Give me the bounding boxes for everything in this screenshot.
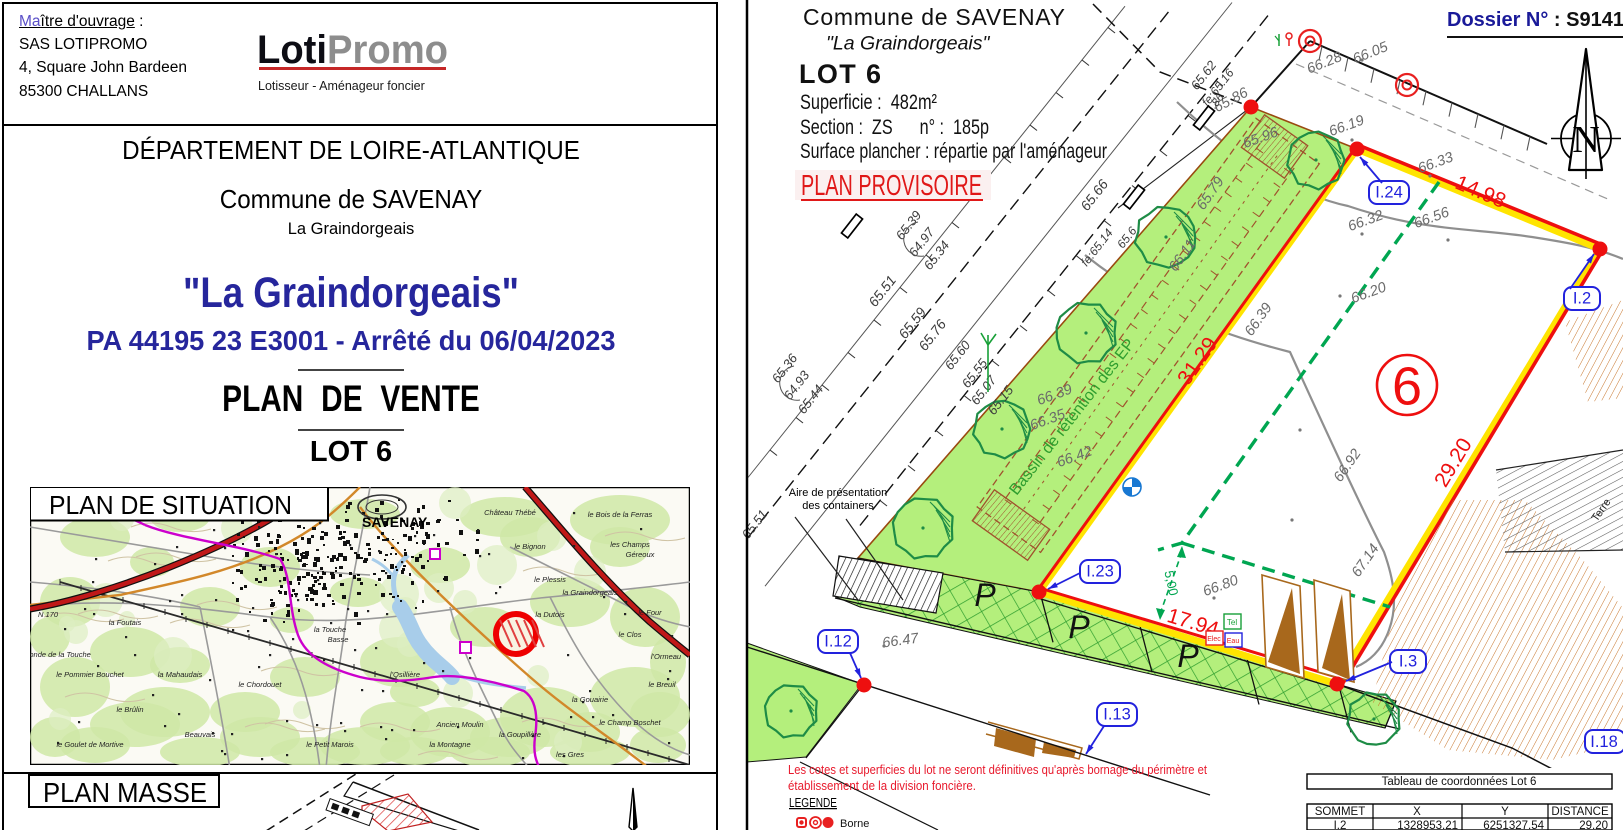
svg-text:la Gouairie: la Gouairie [572, 695, 608, 704]
svg-text:la Touche: la Touche [314, 625, 346, 634]
svg-text:Ancien Moulin: Ancien Moulin [435, 720, 483, 729]
svg-text:le Bois de la Ferras: le Bois de la Ferras [588, 510, 653, 519]
svg-text:le Chordouet: le Chordouet [239, 680, 283, 689]
svg-text:Tableau de coordonnées Lot 6: Tableau de coordonnées Lot 6 [1382, 776, 1537, 788]
svg-text:Elec: Elec [1207, 636, 1221, 643]
svg-text:Eau: Eau [1227, 638, 1240, 645]
svg-text:29.20: 29.20 [1579, 820, 1608, 830]
svg-text:Surface plancher : répartie pa: Surface plancher : répartie par l'aménag… [800, 140, 1107, 163]
svg-text:les Champs: les Champs [610, 540, 650, 549]
svg-text:le Champ Boschet: le Champ Boschet [599, 718, 661, 727]
svg-text:le Brûlin: le Brûlin [116, 705, 143, 714]
svg-text:Beauvais: Beauvais [185, 730, 216, 739]
svg-text:Dossier N° : S9141: Dossier N° : S9141 [1447, 9, 1623, 31]
svg-text:Basse: Basse [328, 635, 349, 644]
svg-text:6251327.54: 6251327.54 [1483, 820, 1544, 830]
svg-text:P: P [1068, 609, 1090, 645]
svg-text:des containers: des containers [802, 500, 874, 512]
svg-text:Géreoux: Géreoux [626, 550, 655, 559]
svg-text:SAVENAY: SAVENAY [362, 514, 428, 530]
svg-text:Londe de la Touche: Londe de la Touche [30, 650, 91, 659]
svg-text:Les cotes et superficies du lo: Les cotes et superficies du lot ne seron… [788, 762, 1207, 777]
svg-text:le Plessis: le Plessis [534, 575, 566, 584]
svg-text:l'Osillière: l'Osillière [390, 670, 420, 679]
svg-text:P: P [974, 577, 996, 613]
svg-text:la Foutais: la Foutais [109, 618, 142, 627]
svg-text:X: X [1413, 806, 1421, 818]
svg-text:la Dutois: la Dutois [535, 610, 564, 619]
svg-text:Superficie : 482m²: Superficie : 482m² [800, 91, 937, 114]
svg-text:Tel: Tel [1227, 618, 1237, 627]
svg-text:le Breuil: le Breuil [648, 680, 675, 689]
svg-text:I.12: I.12 [824, 633, 852, 651]
svg-text:PLAN PROVISOIRE: PLAN PROVISOIRE [801, 170, 982, 202]
svg-text:l'Ormeau: l'Ormeau [651, 652, 682, 661]
svg-text:6: 6 [1392, 357, 1422, 417]
svg-text:le Bignon: le Bignon [514, 542, 545, 551]
svg-text:PLAN DE SITUATION: PLAN DE SITUATION [49, 490, 292, 520]
svg-text:DISTANCE: DISTANCE [1551, 806, 1609, 818]
svg-text:N 170: N 170 [38, 610, 59, 619]
svg-text:I.2: I.2 [1334, 820, 1347, 830]
svg-text:établissement de la division f: établissement de la division foncière. [788, 778, 976, 793]
svg-text:les Gres: les Gres [556, 750, 584, 759]
svg-text:Borne: Borne [840, 818, 869, 830]
svg-text:PLAN MASSE: PLAN MASSE [43, 777, 207, 808]
svg-text:la Graindorgeais: la Graindorgeais [562, 588, 617, 597]
svg-text:la Goupillère: la Goupillère [499, 730, 541, 739]
svg-text:le Goulet de Mortive: le Goulet de Mortive [56, 740, 123, 749]
svg-text:Y: Y [1501, 806, 1509, 818]
svg-text:le Four: le Four [638, 608, 662, 617]
svg-text:1328953.21: 1328953.21 [1397, 820, 1458, 830]
svg-text:Commune de SAVENAY: Commune de SAVENAY [803, 4, 1065, 30]
svg-text:le Clos: le Clos [619, 630, 642, 639]
svg-text:I.3: I.3 [1399, 653, 1417, 671]
svg-text:LOT 6: LOT 6 [799, 59, 881, 89]
svg-text:I.13: I.13 [1103, 706, 1131, 724]
svg-text:I.23: I.23 [1086, 563, 1114, 581]
svg-text:SOMMET: SOMMET [1315, 806, 1365, 818]
svg-text:Section : ZS n° : 185p: Section : ZS n° : 185p [800, 116, 989, 139]
svg-text:LEGENDE: LEGENDE [789, 796, 837, 810]
svg-text:I.18: I.18 [1590, 733, 1618, 751]
svg-text:"La Graindorgeais": "La Graindorgeais" [826, 33, 991, 55]
svg-text:la Montagne: la Montagne [429, 740, 470, 749]
svg-text:Château Thébé: Château Thébé [484, 508, 536, 517]
svg-text:I.24: I.24 [1375, 184, 1403, 202]
svg-text:le Petit Marois: le Petit Marois [306, 740, 354, 749]
svg-text:N: N [1572, 119, 1599, 161]
svg-text:Aire de présentation: Aire de présentation [789, 487, 887, 499]
svg-text:le Pommier Bouchet: le Pommier Bouchet [56, 670, 124, 679]
svg-text:I.2: I.2 [1573, 290, 1591, 308]
svg-text:la Mahaudais: la Mahaudais [158, 670, 203, 679]
